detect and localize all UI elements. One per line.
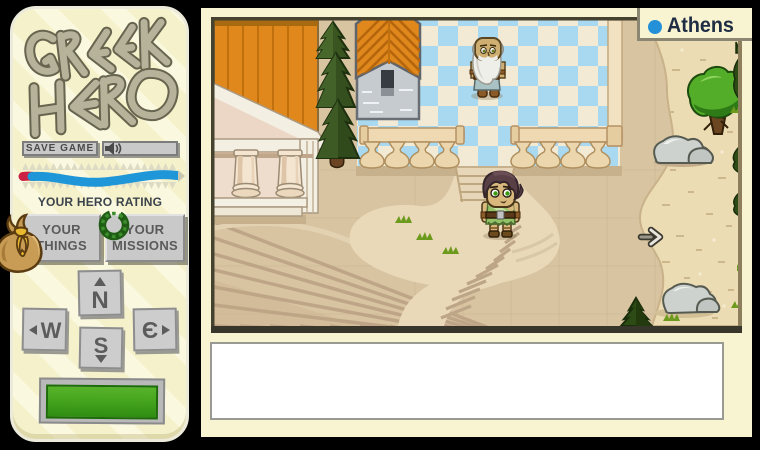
svg-text:W: W <box>41 318 62 343</box>
svg-text:N: N <box>91 287 108 314</box>
svg-text:S: S <box>94 333 109 358</box>
svg-text:Є: Є <box>142 317 158 343</box>
